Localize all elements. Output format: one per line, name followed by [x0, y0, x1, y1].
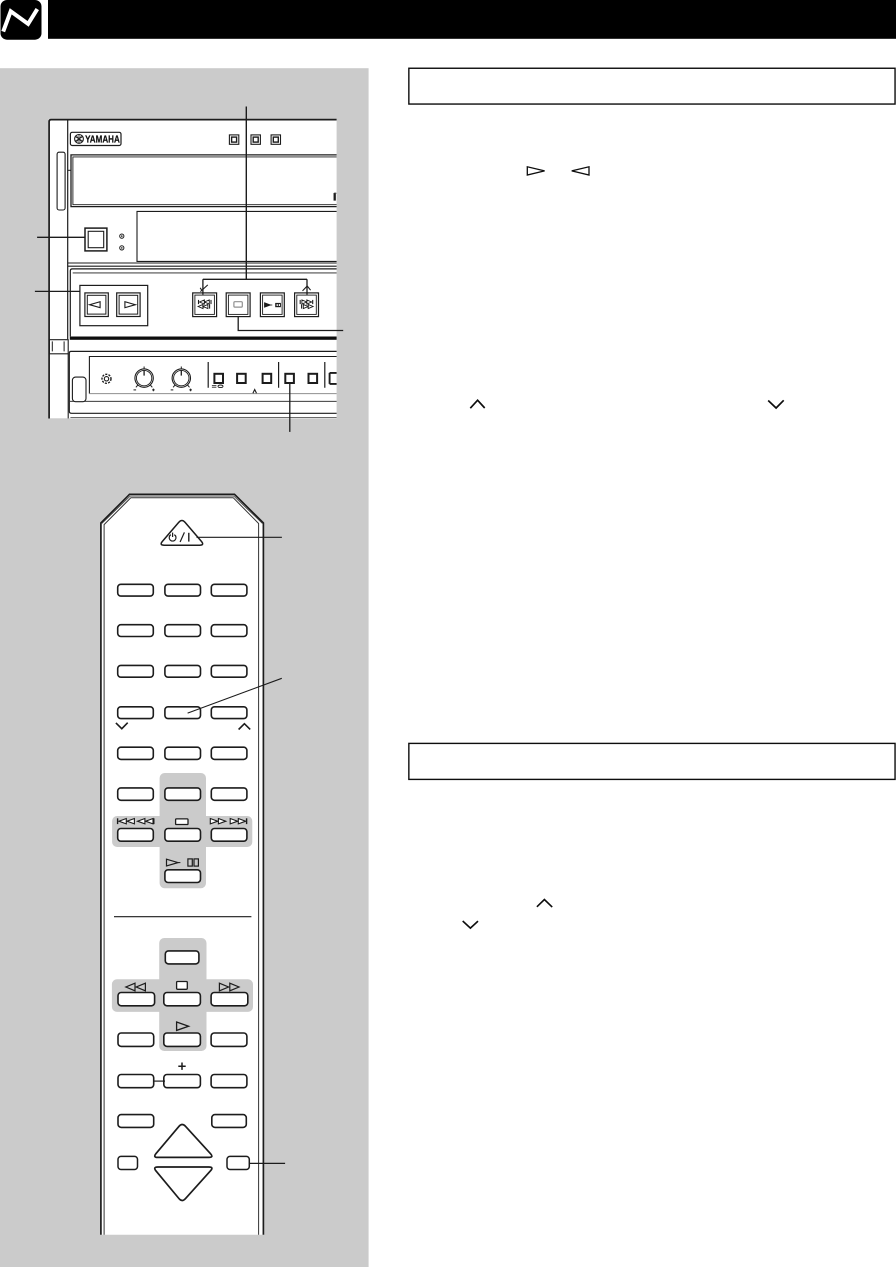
svg-text:YAMAHA: YAMAHA	[85, 134, 120, 145]
